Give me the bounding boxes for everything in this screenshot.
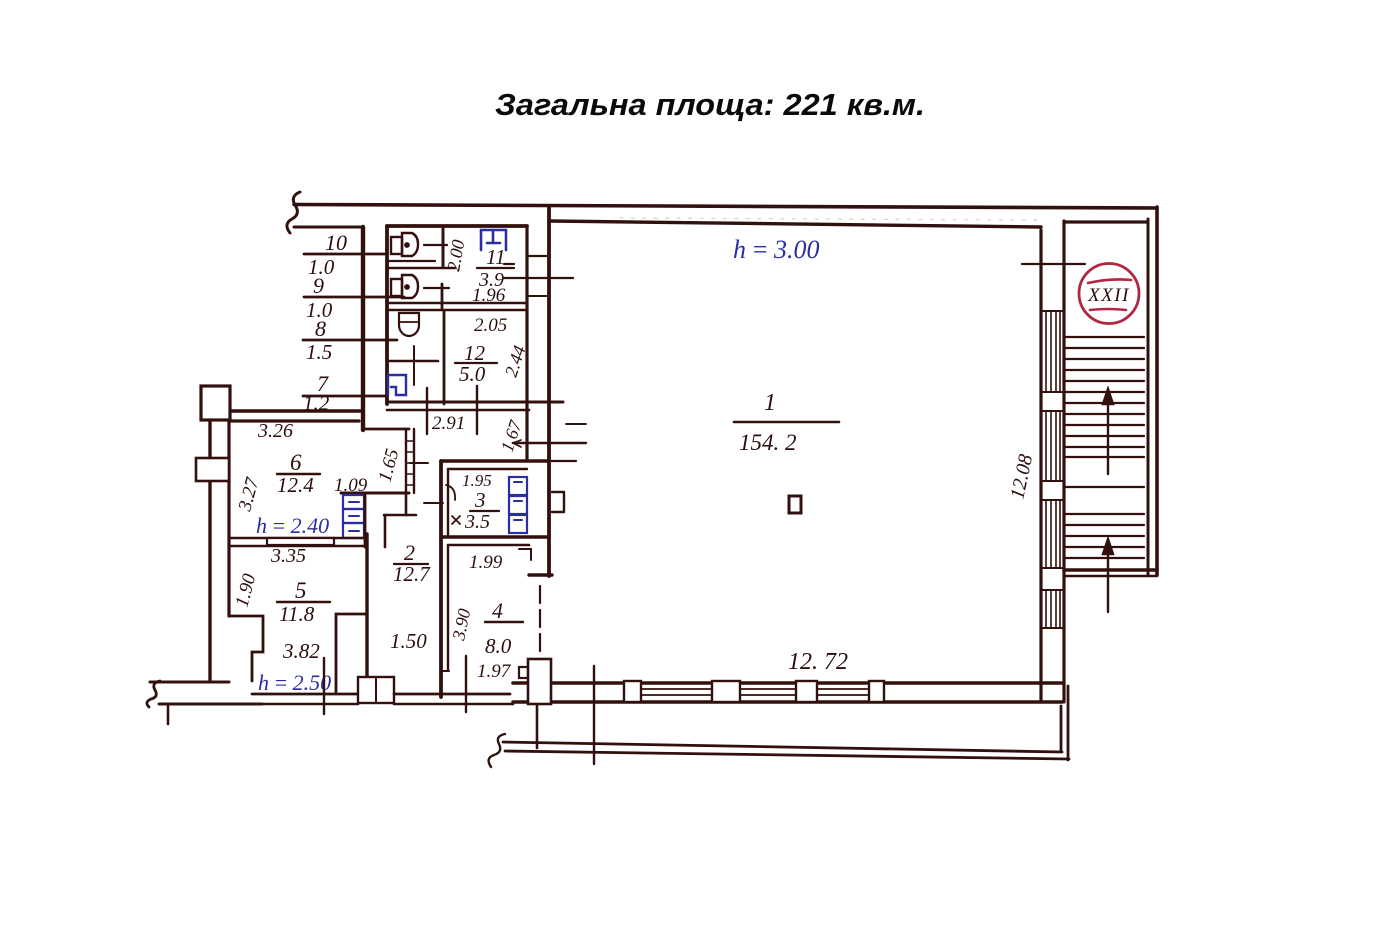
svg-text:2.05: 2.05 <box>474 315 507 336</box>
svg-text:6: 6 <box>290 450 302 475</box>
svg-text:11: 11 <box>486 245 505 269</box>
svg-text:2.91: 2.91 <box>432 413 465 434</box>
svg-text:3.82: 3.82 <box>282 639 320 663</box>
svg-text:1.5: 1.5 <box>306 340 332 364</box>
svg-text:11.8: 11.8 <box>279 602 315 626</box>
svg-text:12.7: 12.7 <box>393 562 431 586</box>
svg-text:8: 8 <box>315 316 326 341</box>
svg-text:8.0: 8.0 <box>485 634 512 658</box>
svg-text:5.0: 5.0 <box>459 362 486 386</box>
svg-text:1.50: 1.50 <box>390 629 427 653</box>
svg-text:h = 2.50: h = 2.50 <box>258 670 331 695</box>
svg-text:9: 9 <box>313 273 324 298</box>
svg-text:Загальна площа: 221 кв.м.: Загальна площа: 221 кв.м. <box>495 87 925 122</box>
svg-text:3.35: 3.35 <box>270 545 306 567</box>
svg-text:h = 3.00: h = 3.00 <box>733 235 819 264</box>
svg-text:10: 10 <box>325 230 347 255</box>
svg-text:3: 3 <box>474 488 486 512</box>
svg-text:154. 2: 154. 2 <box>739 430 797 455</box>
svg-text:12.4: 12.4 <box>277 473 314 497</box>
svg-text:3.26: 3.26 <box>257 420 293 442</box>
svg-text:3.5: 3.5 <box>464 511 490 533</box>
svg-text:1: 1 <box>764 390 776 416</box>
svg-text:1.99: 1.99 <box>469 552 503 573</box>
svg-text:1.97: 1.97 <box>477 661 512 682</box>
svg-text:12. 72: 12. 72 <box>788 649 848 675</box>
svg-text:XXII: XXII <box>1087 285 1130 306</box>
svg-text:4: 4 <box>492 598 503 623</box>
svg-text:5: 5 <box>295 578 307 603</box>
svg-text:h = 2.40: h = 2.40 <box>256 513 329 538</box>
svg-text:1.96: 1.96 <box>472 285 506 306</box>
